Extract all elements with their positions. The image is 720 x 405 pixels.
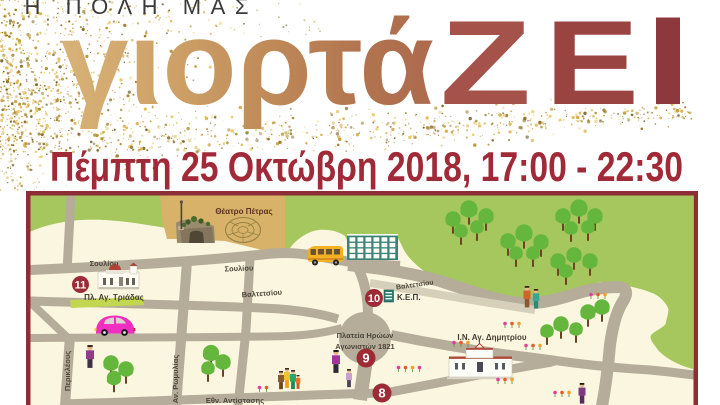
svg-text:9: 9 bbox=[362, 351, 369, 366]
svg-text:Σουλίου: Σουλίου bbox=[224, 263, 254, 273]
svg-text:Κ.Ε.Π.: Κ.Ε.Π. bbox=[397, 293, 421, 302]
svg-text:Αν. Ρωμυλίας: Αν. Ρωμυλίας bbox=[171, 355, 180, 404]
svg-text:γιορτά: γιορτά bbox=[61, 0, 434, 130]
svg-text:Ζ: Ζ bbox=[440, 0, 531, 130]
svg-text:Πέμπτη 25 Οκτώβρη 2018, 17:00: Πέμπτη 25 Οκτώβρη 2018, 17:00 - 22:30 bbox=[50, 143, 683, 190]
svg-text:Ε: Ε bbox=[545, 0, 639, 130]
svg-text:Περικλέους: Περικλέους bbox=[63, 351, 72, 391]
svg-text:Εθν. Αντίστασης: Εθν. Αντίστασης bbox=[206, 396, 264, 405]
svg-text:8: 8 bbox=[378, 386, 385, 401]
svg-text:Θέατρο Πέτρας: Θέατρο Πέτρας bbox=[215, 207, 272, 216]
svg-text:Ι.Ν. Αγ. Δημητρίου: Ι.Ν. Αγ. Δημητρίου bbox=[457, 333, 526, 342]
svg-text:11: 11 bbox=[75, 279, 87, 291]
svg-text:10: 10 bbox=[368, 293, 380, 305]
svg-text:Πλατεία Ηρώων: Πλατεία Ηρώων bbox=[337, 331, 394, 340]
svg-text:Πλ. Αγ. Τριάδας: Πλ. Αγ. Τριάδας bbox=[84, 293, 144, 302]
